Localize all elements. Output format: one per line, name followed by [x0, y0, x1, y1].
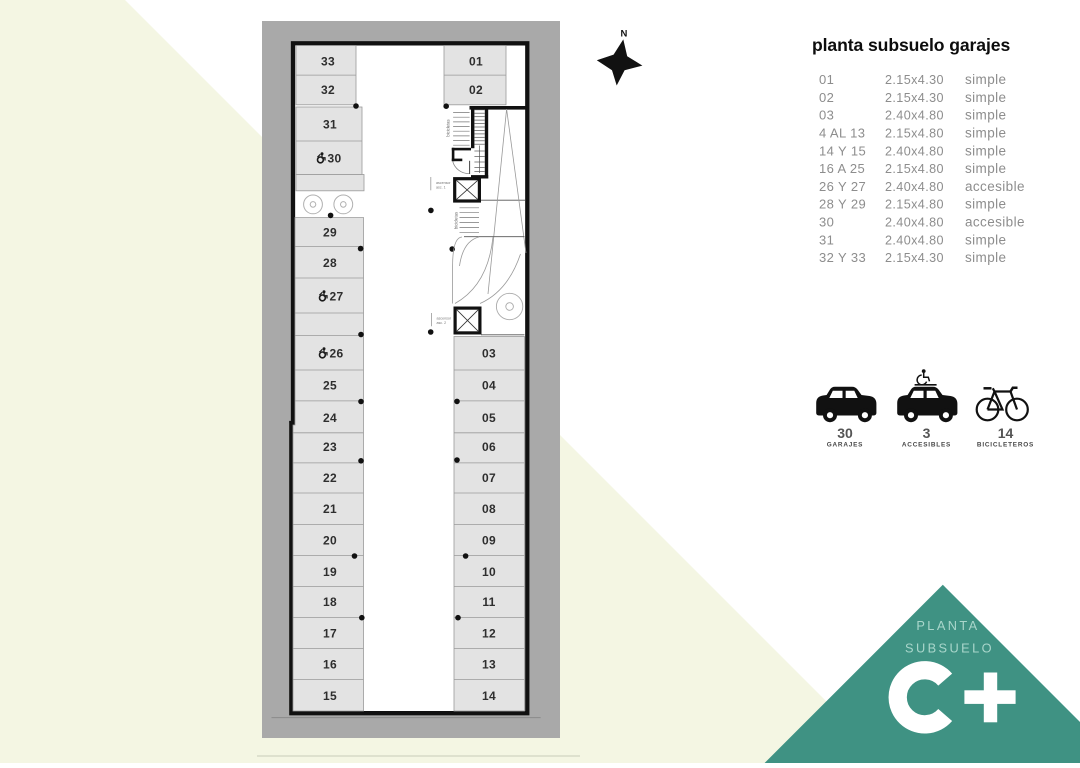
- svg-text:asc. 1: asc. 1: [436, 186, 446, 190]
- svg-text:simple: simple: [965, 90, 1006, 105]
- svg-text:ascensor: ascensor: [436, 181, 451, 185]
- svg-text:05: 05: [482, 411, 496, 425]
- svg-text:N: N: [621, 29, 628, 40]
- svg-text:24: 24: [323, 411, 337, 425]
- svg-text:16 A 25: 16 A 25: [819, 161, 865, 176]
- svg-text:bicicletas: bicicletas: [454, 212, 459, 229]
- svg-text:2.40x4.80: 2.40x4.80: [885, 180, 944, 194]
- svg-text:14: 14: [998, 425, 1014, 441]
- svg-text:06: 06: [482, 440, 496, 454]
- svg-text:2.15x4.30: 2.15x4.30: [885, 251, 944, 265]
- svg-text:2.40x4.80: 2.40x4.80: [885, 233, 944, 247]
- svg-text:2.15x4.30: 2.15x4.30: [885, 91, 944, 105]
- svg-text:01: 01: [819, 72, 834, 87]
- svg-text:simple: simple: [965, 108, 1006, 123]
- svg-text:11: 11: [482, 595, 495, 609]
- svg-text:20: 20: [323, 533, 337, 547]
- svg-text:27: 27: [330, 289, 344, 303]
- svg-text:19: 19: [323, 565, 337, 579]
- svg-text:10: 10: [482, 565, 496, 579]
- svg-text:GARAJES: GARAJES: [827, 442, 864, 449]
- svg-text:08: 08: [482, 502, 496, 516]
- svg-text:accesible: accesible: [965, 179, 1025, 194]
- svg-text:PLANTA: PLANTA: [916, 618, 979, 633]
- svg-text:32: 32: [321, 83, 335, 97]
- svg-text:31: 31: [819, 232, 834, 247]
- svg-text:01: 01: [469, 54, 483, 68]
- svg-text:31: 31: [323, 117, 337, 131]
- svg-text:2.40x4.80: 2.40x4.80: [885, 216, 944, 230]
- svg-text:simple: simple: [965, 72, 1006, 87]
- svg-text:accesible: accesible: [965, 215, 1025, 230]
- svg-text:26 Y 27: 26 Y 27: [819, 179, 866, 194]
- svg-text:simple: simple: [965, 250, 1006, 265]
- svg-text:3: 3: [923, 425, 931, 441]
- svg-text:30: 30: [328, 151, 342, 165]
- svg-text:planta subsuelo garajes: planta subsuelo garajes: [812, 35, 1010, 55]
- svg-text:33: 33: [321, 54, 335, 68]
- svg-text:15: 15: [323, 689, 337, 703]
- svg-text:25: 25: [323, 378, 337, 392]
- svg-text:2.15x4.80: 2.15x4.80: [885, 198, 944, 212]
- svg-text:SUBSUELO: SUBSUELO: [905, 640, 994, 655]
- svg-text:30: 30: [819, 215, 834, 230]
- svg-text:22: 22: [323, 471, 337, 485]
- svg-text:simple: simple: [965, 161, 1006, 176]
- svg-text:14: 14: [482, 689, 496, 703]
- svg-text:18: 18: [323, 595, 337, 609]
- svg-text:2.15x4.30: 2.15x4.30: [885, 73, 944, 87]
- svg-text:simple: simple: [965, 126, 1006, 141]
- svg-text:30: 30: [837, 425, 853, 441]
- svg-text:23: 23: [323, 440, 337, 454]
- svg-text:26: 26: [330, 346, 344, 360]
- svg-text:13: 13: [482, 657, 496, 671]
- svg-text:ACCESIBLES: ACCESIBLES: [902, 442, 951, 449]
- svg-text:03: 03: [482, 346, 496, 360]
- svg-text:04: 04: [482, 378, 496, 392]
- svg-text:03: 03: [819, 108, 834, 123]
- svg-text:02: 02: [469, 83, 483, 97]
- svg-text:simple: simple: [965, 143, 1006, 158]
- svg-text:21: 21: [323, 502, 337, 516]
- svg-text:BICICLETEROS: BICICLETEROS: [977, 442, 1034, 449]
- svg-text:2.15x4.80: 2.15x4.80: [885, 162, 944, 176]
- svg-text:2.15x4.80: 2.15x4.80: [885, 127, 944, 141]
- svg-text:2.40x4.80: 2.40x4.80: [885, 109, 944, 123]
- svg-text:28: 28: [323, 256, 337, 270]
- svg-text:simple: simple: [965, 232, 1006, 247]
- svg-text:28 Y 29: 28 Y 29: [819, 197, 866, 212]
- svg-text:07: 07: [482, 471, 496, 485]
- svg-text:14 Y 15: 14 Y 15: [819, 143, 866, 158]
- svg-text:12: 12: [482, 626, 496, 640]
- svg-text:asc. 2: asc. 2: [437, 321, 447, 325]
- svg-text:17: 17: [323, 626, 337, 640]
- svg-text:09: 09: [482, 533, 496, 547]
- svg-text:simple: simple: [965, 197, 1006, 212]
- svg-text:2.40x4.80: 2.40x4.80: [885, 144, 944, 158]
- svg-text:16: 16: [323, 657, 337, 671]
- svg-text:bicicletas: bicicletas: [446, 119, 451, 136]
- svg-text:02: 02: [819, 90, 834, 105]
- svg-text:4 AL 13: 4 AL 13: [819, 126, 865, 141]
- svg-text:29: 29: [323, 225, 337, 239]
- svg-text:ascensor: ascensor: [437, 317, 452, 321]
- svg-text:32 Y 33: 32 Y 33: [819, 250, 866, 265]
